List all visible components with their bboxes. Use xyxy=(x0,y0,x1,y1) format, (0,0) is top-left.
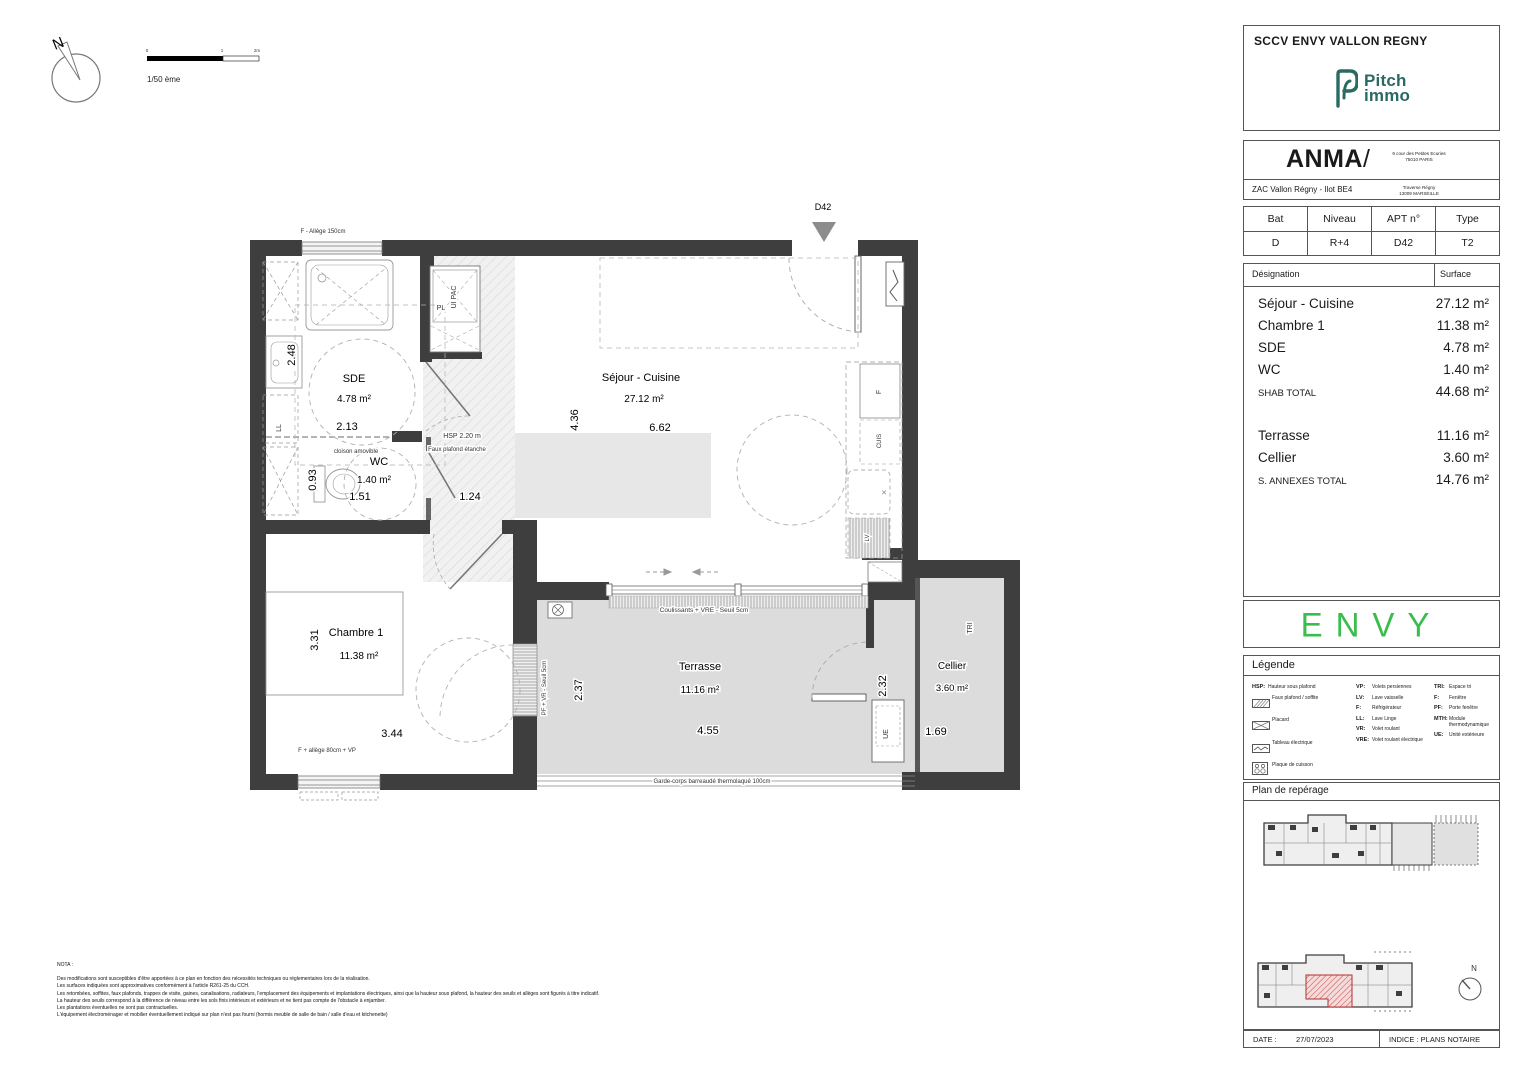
gaine-boxes xyxy=(263,262,298,515)
pitch-immo-icon xyxy=(1332,68,1358,108)
legend-item: VR:Volet roulant xyxy=(1356,726,1430,732)
footer-bar: DATE : 27/07/2023 INDICE : PLANS NOTAIRE xyxy=(1243,1030,1500,1048)
scale-text: 1/50 ème xyxy=(147,75,181,84)
label-chambre-window: F + allège 80cm + VP xyxy=(298,748,356,754)
unit-header-niveau: Niveau xyxy=(1308,207,1372,232)
label-tri: TRI xyxy=(967,622,974,633)
legend-item: Faux plafond / soffite xyxy=(1252,695,1352,713)
reperage-plan-lower xyxy=(1256,949,1456,1015)
room-area-cellier: 3.60 m² xyxy=(936,683,968,694)
legend-item: Tableau électrique xyxy=(1252,740,1352,758)
label-top-window: F - Allège 150cm xyxy=(300,229,345,235)
entrance-door xyxy=(600,256,861,348)
dim-sejour-w: 6.62 xyxy=(649,422,670,434)
surface-col-surface: Surface xyxy=(1440,269,1471,279)
scale-tick-0: 0 xyxy=(146,48,149,53)
room-area-sde: 4.78 m² xyxy=(337,394,372,405)
faux-plafond-icon xyxy=(1252,695,1272,713)
reperage-box: Plan de repérage xyxy=(1243,782,1500,1030)
pitch-logo-line2: immo xyxy=(1364,88,1410,103)
dim-wc-w1: 1.51 xyxy=(349,491,370,503)
legend-item: LL:Lave Linge xyxy=(1356,716,1430,722)
terrace-floor xyxy=(537,600,915,774)
label-cloison: cloison amovible xyxy=(334,449,379,455)
label-pf-vr: PF + VR - Seuil 5cm xyxy=(542,661,548,716)
sliding-bay xyxy=(606,584,868,608)
room-label-sde: SDE xyxy=(343,373,366,385)
legend-item: MTH:Module thermodynamique xyxy=(1434,716,1496,728)
room-label-sejour: Séjour - Cuisine xyxy=(602,372,680,384)
room-label-chambre: Chambre 1 xyxy=(329,627,383,639)
reperage-north-label: N xyxy=(1471,964,1477,973)
label-cuis: CUIS xyxy=(877,434,883,448)
legend-item: HSP:Hauteur sous plafond xyxy=(1252,684,1352,690)
legend-item: UE:Unité extérieure xyxy=(1434,732,1496,738)
room-area-wc: 1.40 m² xyxy=(357,475,392,486)
nota-line: Les surfaces indiquées sont approximativ… xyxy=(57,983,1237,990)
developer-name: SCCV ENVY VALLON REGNY xyxy=(1254,34,1428,48)
window-top xyxy=(302,242,382,254)
surface-row: Terrasse11.16 m² xyxy=(1258,428,1489,443)
pf-vr-door xyxy=(513,644,537,716)
surface-row: SDE4.78 m² xyxy=(1258,340,1489,355)
tableau-electrique-icon xyxy=(1252,740,1272,758)
entrance-label: D42 xyxy=(815,202,832,212)
label-fridge: F xyxy=(876,390,883,394)
nota-title: NOTA : xyxy=(57,962,1237,969)
room-label-terrasse: Terrasse xyxy=(679,661,721,673)
surface-row-shab-total: SHAB TOTAL44.68 m² xyxy=(1258,384,1489,399)
pf-vr-door-swing xyxy=(440,645,513,716)
legend-column-2: VP:Volets persiennes LV:Lave vaisselle F… xyxy=(1356,684,1430,747)
architect-box: ANMA/ 9 cour des Petites Ecuries 75010 P… xyxy=(1243,140,1500,200)
tableau-electrique xyxy=(886,262,904,306)
unit-value-niveau: R+4 xyxy=(1308,231,1372,256)
room-label-cellier: Cellier xyxy=(938,661,967,672)
scale-tick-2m: 2m xyxy=(254,48,261,53)
legend-column-3: TRI:Espace tri F:Fenêtre PF:Porte fenêtr… xyxy=(1434,684,1496,743)
unit-header-type: Type xyxy=(1436,207,1500,232)
room-area-terrasse: 11.16 m² xyxy=(681,685,720,696)
unit-value-apt: D42 xyxy=(1372,231,1436,256)
dim-sde-h: 2.48 xyxy=(286,344,298,365)
legend-item: VP:Volets persiennes xyxy=(1356,684,1430,690)
room-label-wc: WC xyxy=(370,456,388,468)
label-ui-pac: UI PAC xyxy=(451,286,458,309)
legend-title: Légende xyxy=(1252,659,1295,671)
label-terrace-sliding: Coulissants + VRE - Seuil 5cm xyxy=(660,607,749,614)
reperage-plan-upper xyxy=(1262,811,1486,877)
dim-wc-h: 0.93 xyxy=(307,469,319,490)
bed xyxy=(266,592,403,695)
dim-terrasse-h: 2.37 xyxy=(573,679,585,700)
architect-address: 9 cour des Petites Ecuries 75010 PARIS xyxy=(1364,151,1474,163)
dim-terrasse-w: 4.55 xyxy=(697,725,718,737)
legend-item: Placard xyxy=(1252,717,1352,735)
scale-bar: 0 1 2m 1/50 ème xyxy=(146,48,261,84)
date-label: DATE : xyxy=(1253,1035,1277,1044)
surface-row: Chambre 111.38 m² xyxy=(1258,318,1489,333)
unit-value-bat: D xyxy=(1244,231,1308,256)
window-chambre xyxy=(298,776,380,800)
pitch-immo-logo: Pitch immo xyxy=(1332,68,1410,108)
room-area-sejour: 27.12 m² xyxy=(624,394,664,405)
nota-line: Des modifications sont susceptibles d'êt… xyxy=(57,976,1237,983)
envy-logo: ENVY xyxy=(1244,605,1499,645)
nota-line: La hauteur des seuils correspond à la di… xyxy=(57,998,1237,1005)
surface-row: Cellier3.60 m² xyxy=(1258,450,1489,465)
legend-box: Légende HSP:Hauteur sous plafond Faux pl… xyxy=(1243,655,1500,780)
reperage-north-icon: N xyxy=(1452,961,1488,1005)
legend-item: Plaque de cuisson xyxy=(1252,762,1352,780)
legend-item: F:Réfrigérateur xyxy=(1356,705,1430,711)
label-hsp: HSP 2.20 m xyxy=(443,433,481,440)
svg-text:✕: ✕ xyxy=(881,490,887,497)
site-address: Traverse Régny 13009 MARSEILLE xyxy=(1364,185,1474,197)
north-compass-icon: N xyxy=(50,34,100,102)
dim-cellier-h: 2.32 xyxy=(877,675,889,696)
entrance-label-group: D42 xyxy=(812,202,836,242)
floor-plan-drawing: N 0 1 2m 1/50 ème xyxy=(0,0,1240,1080)
surface-table: Désignation Surface Séjour - Cuisine27.1… xyxy=(1243,263,1500,597)
label-ll: LL xyxy=(276,424,283,432)
nota-line: Les retombées, soffites, faux plafonds, … xyxy=(57,991,1237,998)
surface-col-designation: Désignation xyxy=(1252,269,1300,279)
nota-block: NOTA : Des modifications sont susceptibl… xyxy=(57,962,1237,1019)
shower xyxy=(306,260,393,330)
dim-chambre-h: 3.31 xyxy=(309,629,321,650)
dim-wc-w2: 1.24 xyxy=(459,491,480,503)
surface-row: Séjour - Cuisine27.12 m² xyxy=(1258,296,1489,311)
unit-value-type: T2 xyxy=(1436,231,1500,256)
dim-cellier-w: 1.69 xyxy=(925,726,946,738)
dim-sde-w: 2.13 xyxy=(336,421,357,433)
label-faux-plafond: Faux plafond étanche xyxy=(428,447,486,453)
legend-item: TRI:Espace tri xyxy=(1434,684,1496,690)
indice-value: INDICE : PLANS NOTAIRE xyxy=(1389,1035,1480,1044)
legend-item: LV:Lave vaisselle xyxy=(1356,695,1430,701)
date-value: 27/07/2023 xyxy=(1296,1035,1334,1044)
entrance-arrow-icon xyxy=(812,222,836,242)
anma-logo: ANMA/ xyxy=(1286,145,1370,174)
unit-header-bat: Bat xyxy=(1244,207,1308,232)
developer-box: SCCV ENVY VALLON REGNY Pitch immo xyxy=(1243,25,1500,131)
legend-item: VRE:Volet roulant électrique xyxy=(1356,737,1430,743)
dim-chambre-w: 3.44 xyxy=(381,728,402,740)
label-ue: UE xyxy=(883,729,890,739)
envy-logo-box: ENVY xyxy=(1243,600,1500,648)
unit-table: Bat Niveau APT n° Type D R+4 D42 T2 xyxy=(1243,206,1500,256)
nota-line: L'équipement électroménager et mobilier … xyxy=(57,1012,1237,1019)
placard-icon xyxy=(1252,717,1272,735)
plan-sheet: N 0 1 2m 1/50 ème xyxy=(0,0,1528,1080)
surface-row: WC1.40 m² xyxy=(1258,362,1489,377)
project-name: ZAC Vallon Régny - Ilot BE4 xyxy=(1252,185,1352,194)
sliding-arrows xyxy=(646,569,718,575)
plaque-cuisson-icon xyxy=(1252,762,1272,780)
scale-tick-1: 1 xyxy=(221,48,224,53)
dim-sejour-h: 4.36 xyxy=(569,409,581,430)
label-garde-corps: Garde-corps barreaudé thermolaqué 100cm xyxy=(653,779,770,785)
surface-row-annexes-total: S. ANNEXES TOTAL14.76 m² xyxy=(1258,472,1489,487)
nota-line: Les plantations éventuelles ne sont pas … xyxy=(57,1005,1237,1012)
label-lv: LV xyxy=(865,535,871,542)
legend-item: F:Fenêtre xyxy=(1434,695,1496,701)
cellier-floor xyxy=(920,578,1004,772)
legend-item: PF:Porte fenêtre xyxy=(1434,705,1496,711)
unit-header-apt: APT n° xyxy=(1372,207,1436,232)
room-area-chambre: 11.38 m² xyxy=(340,651,379,662)
label-pl: PL xyxy=(437,305,446,312)
faux-plafond-zone xyxy=(515,433,711,518)
reperage-title: Plan de repérage xyxy=(1252,785,1329,796)
